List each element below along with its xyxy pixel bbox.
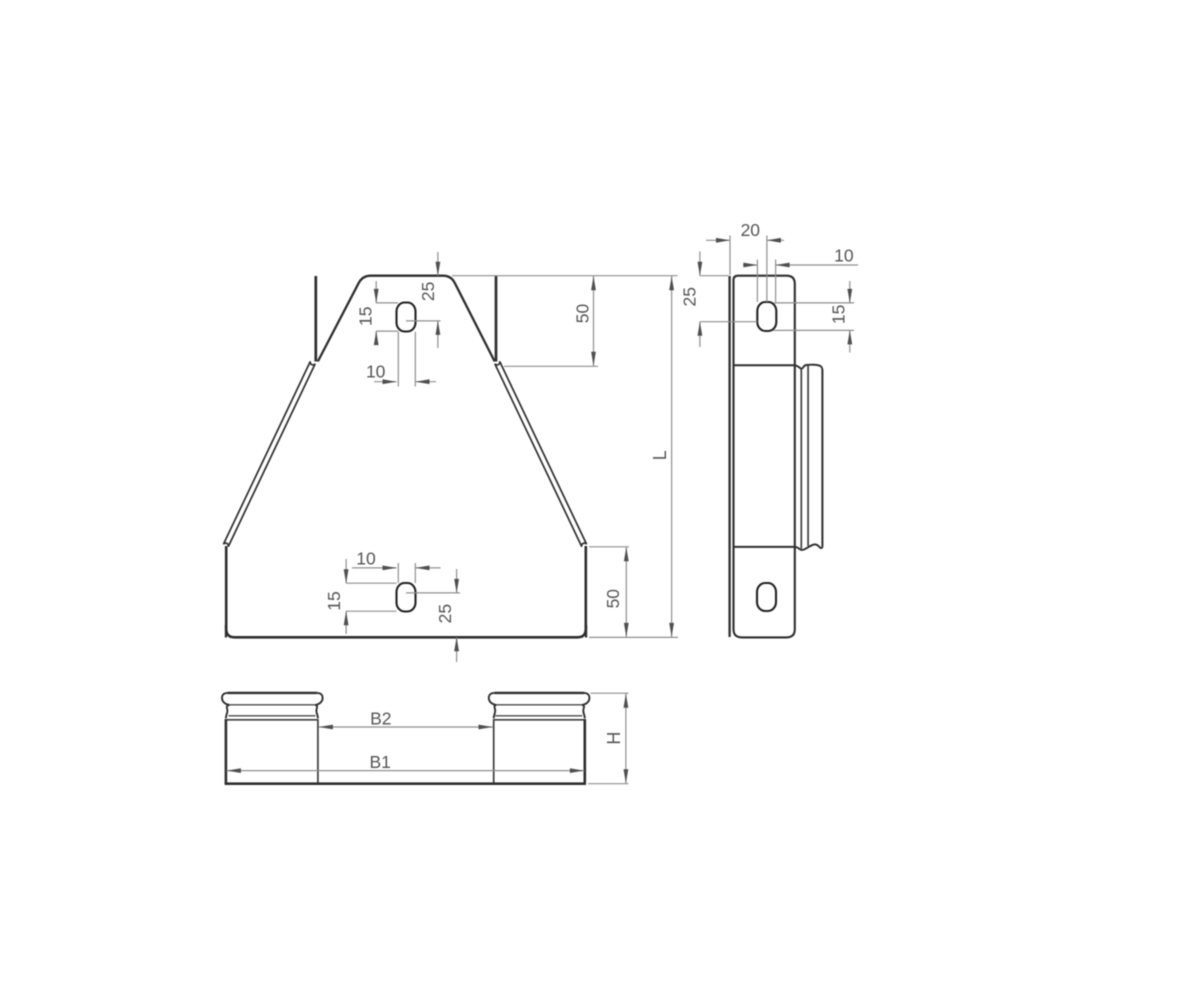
svg-text:50: 50 [603, 589, 623, 609]
svg-text:10: 10 [834, 246, 854, 266]
svg-text:15: 15 [324, 591, 344, 610]
svg-text:15: 15 [829, 305, 849, 324]
svg-text:B1: B1 [369, 752, 390, 772]
svg-text:20: 20 [741, 220, 761, 240]
svg-text:B2: B2 [370, 709, 391, 729]
svg-text:L: L [650, 450, 670, 460]
svg-text:50: 50 [573, 304, 593, 324]
svg-text:10: 10 [356, 548, 376, 568]
svg-text:10: 10 [366, 361, 386, 381]
svg-text:H: H [604, 732, 624, 745]
svg-text:25: 25 [679, 287, 699, 306]
svg-text:15: 15 [356, 307, 376, 326]
svg-text:25: 25 [435, 604, 455, 623]
svg-text:25: 25 [418, 282, 438, 301]
